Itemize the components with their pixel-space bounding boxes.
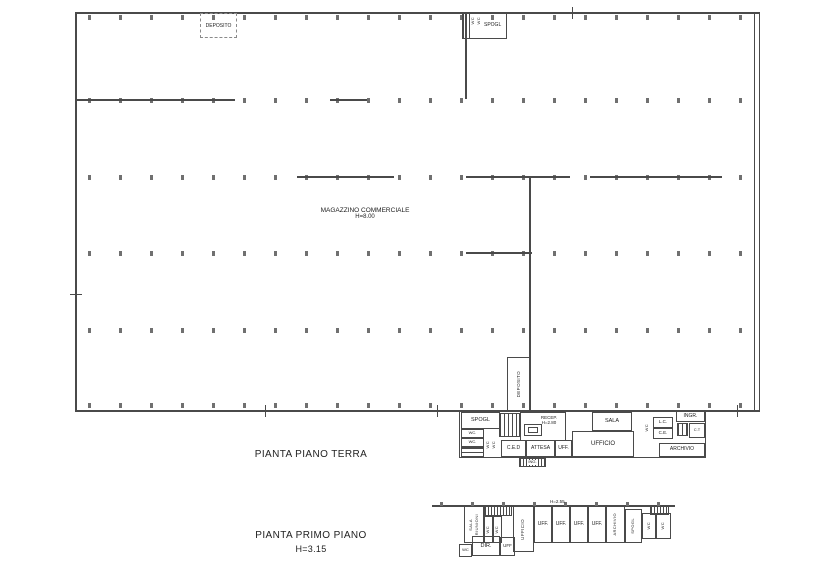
room-wc-f1: WC bbox=[642, 513, 656, 539]
stair-hatch bbox=[463, 14, 470, 38]
entrance-ing: ING. bbox=[519, 458, 546, 467]
staircase-f1 bbox=[484, 506, 512, 516]
room-lc: L.C. bbox=[653, 417, 673, 428]
room-wc-f1: WC bbox=[656, 513, 671, 539]
room-spogl-f1: SPOGL bbox=[625, 509, 642, 543]
room-label-wc-f1: WC bbox=[647, 522, 651, 529]
room-label-attesa: ATTESA bbox=[531, 446, 550, 452]
room-label-lc: L.C. bbox=[659, 420, 667, 425]
room-label-dir-f1: DIR. bbox=[481, 543, 492, 549]
room-ingr: INGR. bbox=[676, 411, 705, 422]
room-label-wc: WC bbox=[477, 17, 482, 24]
room-label-wc: WC bbox=[471, 17, 476, 24]
dimension-tick bbox=[572, 7, 573, 19]
wc-stalls bbox=[461, 447, 484, 457]
room-wc-gf: WC. bbox=[461, 429, 484, 438]
room-label-ufficio-gf: UFFICIO bbox=[591, 441, 615, 448]
room-ct: C.T bbox=[689, 423, 705, 438]
wall-segment bbox=[466, 176, 570, 178]
room-label-wc-gf: WC bbox=[486, 441, 491, 448]
dimension-tick bbox=[265, 405, 266, 417]
room-sala-gf: SALA bbox=[592, 412, 632, 431]
room-label-uff5-f1: UFF bbox=[503, 544, 512, 549]
room-label-sala-gf: SALA bbox=[605, 418, 619, 424]
room-ce: C.E. bbox=[653, 428, 673, 439]
reception-desk-icon-inner bbox=[528, 427, 538, 433]
room-label-archivio-f1: ARCHIVIO bbox=[613, 513, 617, 536]
room-label-uff-gf: UFF. bbox=[558, 446, 569, 452]
room-label-wc-f1: WC bbox=[661, 522, 665, 529]
room-label-archivio-gf: ARCHIVIO bbox=[670, 447, 694, 453]
warehouse-height: H=8.00 bbox=[280, 214, 450, 221]
column-row-top bbox=[88, 15, 743, 20]
dimension-tick bbox=[737, 405, 738, 417]
entrance-label-ing: ING. bbox=[527, 460, 537, 464]
room-ufficio-gf: UFFICIO bbox=[572, 431, 634, 457]
warehouse-name: MAGAZZINO COMMERCIALE bbox=[280, 207, 450, 214]
warehouse-wall-left bbox=[75, 12, 77, 412]
room-uff5-f1: UFF bbox=[500, 537, 515, 556]
wall-segment bbox=[77, 99, 235, 101]
room-uff-f1: UFF. bbox=[552, 506, 570, 543]
room-label-uff-f1: UFF. bbox=[574, 522, 585, 528]
room-label-spogl-f1: SPOGL bbox=[631, 518, 635, 534]
column-row-bottom bbox=[88, 403, 743, 408]
room-label-ufficio-f1: UFFICIO bbox=[521, 519, 526, 540]
room-deposito-bottom: DEPOSITO bbox=[507, 357, 531, 411]
first-floor-dim: H=2.55 bbox=[550, 499, 565, 504]
ground-floor-title: PIANTA PIANO TERRA bbox=[236, 449, 386, 460]
warehouse-name-label: MAGAZZINO COMMERCIALE H=8.00 bbox=[280, 207, 450, 221]
room-label-ct: C.T bbox=[694, 428, 700, 432]
wall-segment bbox=[330, 99, 367, 101]
column-row-3 bbox=[88, 251, 743, 256]
warehouse-wall-right bbox=[754, 12, 760, 412]
room-uff-f1: UFF. bbox=[570, 506, 588, 543]
room-label-ce: C.E. bbox=[659, 431, 668, 436]
room-label-wc5-f1: WC bbox=[462, 548, 469, 552]
room-label-deposito-top: DEPOSITO bbox=[201, 24, 236, 30]
room-label-wc-gf: WC. bbox=[469, 431, 477, 435]
room-dir-f1: DIR. bbox=[472, 536, 500, 556]
drawing-sheet: DEPOSITO WC WC SPOGL MAGAZZINO COMMERCIA… bbox=[0, 0, 840, 568]
first-floor-height: H=3.15 bbox=[236, 544, 386, 554]
warehouse-wall-top bbox=[75, 12, 760, 14]
first-floor-title-text: PIANTA PRIMO PIANO bbox=[236, 530, 386, 541]
room-label-uff-f1: UFF. bbox=[556, 522, 567, 528]
room-uff-gf: UFF. bbox=[555, 440, 572, 457]
dimension-tick bbox=[437, 405, 438, 417]
room-uff-f1: UFF. bbox=[534, 506, 552, 543]
first-floor-title: PIANTA PRIMO PIANO H=3.15 bbox=[236, 530, 386, 554]
room-label-wc-f1: WC bbox=[495, 526, 499, 533]
dimension-tick bbox=[70, 294, 82, 295]
room-label-sala-f1: SALA bbox=[469, 519, 473, 531]
room-ced: C.E.D bbox=[501, 440, 526, 457]
wall-segment bbox=[297, 176, 394, 178]
room-wc-gf: WC. bbox=[461, 438, 484, 447]
room-label-uff-f1: UFF. bbox=[538, 522, 549, 528]
entry-stair-hatch bbox=[677, 423, 688, 436]
room-uff-f1: UFF. bbox=[588, 506, 606, 543]
room-spogl-gf: SPOGL bbox=[461, 412, 500, 429]
room-label-wc-f1: WC bbox=[486, 526, 490, 533]
room-attesa: ATTESA bbox=[526, 440, 555, 457]
room-wc5-f1: WC bbox=[459, 544, 472, 557]
room-label-uff-f1: UFF. bbox=[592, 522, 603, 528]
room-label-wc-gf: WC bbox=[645, 424, 650, 431]
room-label-ced: C.E.D bbox=[507, 446, 520, 452]
room-ufficio-f1: UFFICIO bbox=[513, 506, 534, 552]
room-label-ingr: INGR. bbox=[684, 414, 698, 420]
wall-segment bbox=[466, 252, 532, 254]
column-row-4 bbox=[88, 328, 743, 333]
room-label-wc-gf: WC. bbox=[469, 440, 477, 444]
room-label-riunioni-f1: RIUNIONI bbox=[475, 514, 479, 535]
room-archivio-gf: ARCHIVIO bbox=[659, 443, 705, 457]
room-label-spogl-gf: SPOGL bbox=[471, 417, 490, 423]
room-spogl-top: WC WC SPOGL bbox=[462, 13, 507, 39]
staircase-gf bbox=[499, 413, 520, 437]
room-label-spogl-top: SPOGL bbox=[484, 23, 501, 29]
room-label-wc-gf: WC bbox=[492, 441, 497, 448]
wall-segment bbox=[590, 176, 722, 178]
room-archivio-f1: ARCHIVIO bbox=[606, 506, 625, 543]
room-label-deposito-bottom: DEPOSITO bbox=[517, 371, 522, 397]
